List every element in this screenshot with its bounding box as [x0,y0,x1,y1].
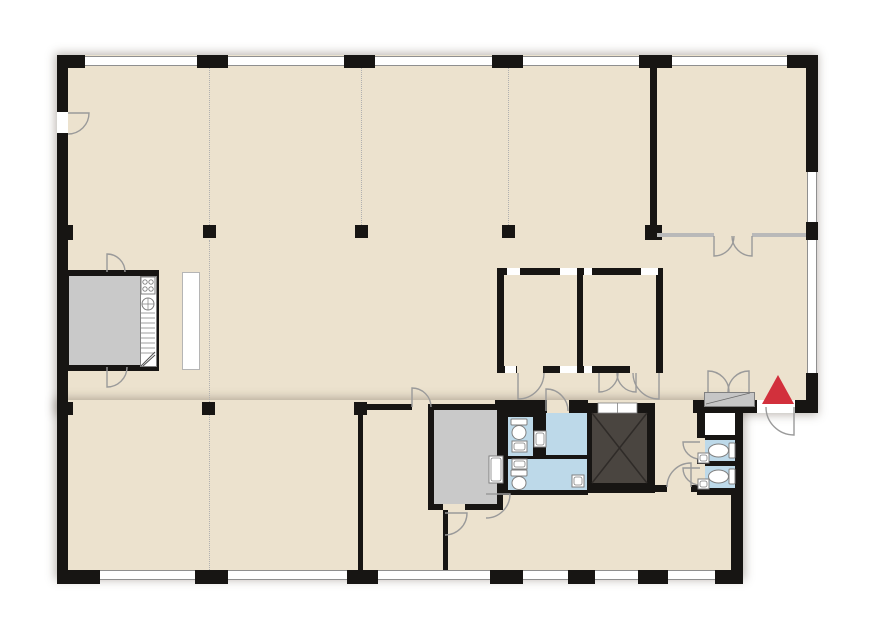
door-gap-wc-east-b [697,464,705,485]
window-top [375,56,492,66]
wall-entrance [795,400,818,413]
door-gap-meeting-left [517,366,543,373]
window-bottom [100,570,195,580]
window-bottom [595,570,638,580]
column [354,402,367,415]
door-gap-wc-east-a [697,438,705,459]
wall-top-pier [492,55,523,68]
column [355,225,368,238]
room-wc-east-b [705,466,735,488]
column-grid-line [361,68,362,225]
room-wc-east-a [705,440,735,461]
window-top [523,56,639,66]
window-right [807,240,817,373]
glazing-notch [505,366,516,373]
door-gap-washroom [547,400,569,413]
wall-top-pier [344,55,375,68]
door-gap-corridor [667,485,691,492]
window-top [672,56,787,66]
column [203,225,216,238]
wall-partition-thin [691,485,700,492]
room-wc-a [508,417,533,456]
wall-partition-thin [358,410,363,570]
column-grid-line [209,240,210,402]
room-storage-lower [434,410,497,504]
wall-bottom-pier [638,570,668,584]
column [202,402,215,415]
wall-left [57,55,68,112]
window-bottom [668,570,715,580]
column-grid-line [209,68,210,225]
room-washroom-a [546,413,587,455]
wall-bottom-pier [347,570,378,584]
cabinet-entrance [704,392,755,407]
column-grid-line [209,415,210,570]
floor-plan [0,0,889,617]
kitchenette-strip [140,276,157,367]
room-closet-east [705,413,735,435]
wall-meeting-right [656,268,663,373]
glazing-notch [584,366,592,373]
room-wc-b [508,459,533,490]
glazing-notch [641,268,658,275]
column-grid-line [508,68,509,225]
wall-top-pier [639,55,672,68]
wall-meeting-divider [577,268,583,373]
room-washroom-b [532,459,587,490]
door-gap-meeting-right [630,366,656,373]
glazing-notch [560,268,577,275]
wall-meeting-left [497,268,504,373]
column [502,225,515,238]
wall-bottom-pier [57,570,100,584]
wall-partition-thin [653,485,667,492]
glazing-notch [507,268,520,275]
room-service-left [69,276,140,365]
wall-bottom-pier [195,570,228,584]
wall-top-pier [197,55,228,68]
wall-right [806,55,818,172]
window-top [85,56,197,66]
partition-screen [182,272,200,370]
wall-bottom-pier [568,570,595,584]
wall-left-pier [57,402,73,415]
wall-left-pier [57,225,73,240]
window-top [228,56,344,66]
glass-wall-corner-room [657,233,714,237]
window-bottom [228,570,347,580]
door-gap-left-entry [57,112,68,133]
wall-bottom-pier [490,570,523,584]
window-right [807,172,817,222]
window-bottom [378,570,490,580]
wall-right-pier [806,222,818,240]
entrance-marker [762,375,794,404]
wall-corner-room [650,68,657,228]
wall-partition-thin [443,510,448,570]
elevator-cab [592,413,647,483]
glazing-notch [560,366,577,373]
glass-wall-corner-room [752,233,806,237]
door-gap-storage [443,504,465,510]
glazing-notch [584,268,592,275]
window-bottom [523,570,568,580]
door-gap-partition [412,404,428,410]
